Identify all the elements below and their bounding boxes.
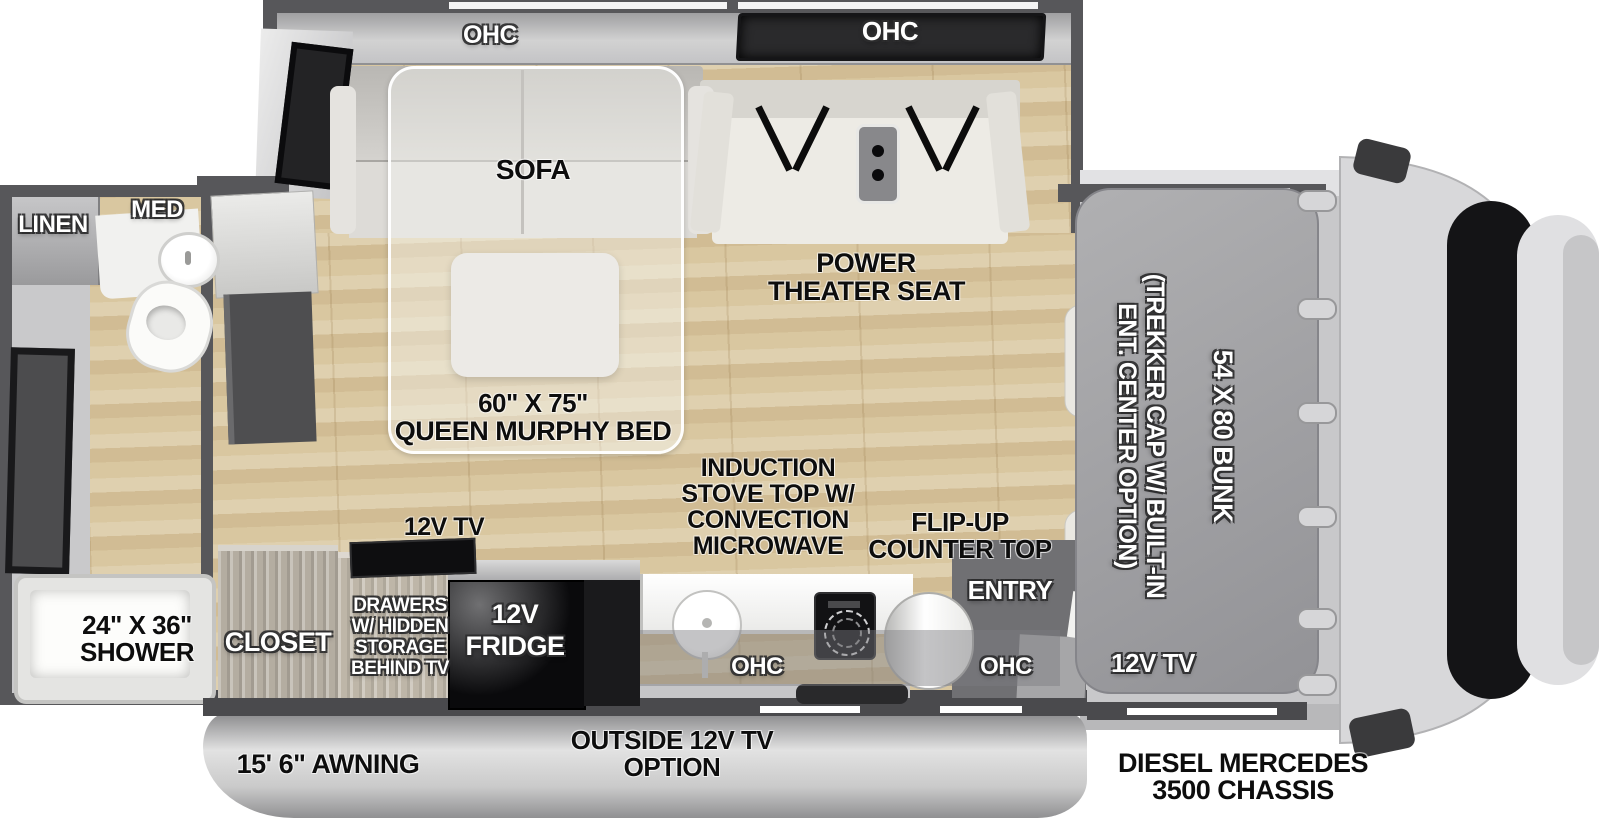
induction-label-line3: CONVECTION xyxy=(646,507,890,533)
closet-label: CLOSET xyxy=(217,628,339,656)
murphy-size-label: 60" X 75" xyxy=(418,390,648,417)
drawers-label-line1: DRAWERS xyxy=(338,596,462,616)
bunk-hinge-icon xyxy=(1297,674,1337,696)
drawers-label-line4: BEHIND TV xyxy=(338,659,462,679)
cab-bumper xyxy=(1563,235,1599,665)
bunk-tv-label: 12V TV xyxy=(1098,650,1208,677)
wardrobe-panel xyxy=(223,292,316,445)
drain-icon xyxy=(702,618,712,628)
theater-seat-console xyxy=(856,124,900,204)
induction-label-line4: MICROWAVE xyxy=(646,533,890,559)
sofa-armrest xyxy=(330,86,356,234)
induction-label-line2: STOVE TOP W/ xyxy=(646,481,890,507)
awning-rail-marker xyxy=(940,706,1022,713)
induction-label-line1: INDUCTION xyxy=(646,455,890,481)
kitchen-tv-label: 12V TV xyxy=(394,514,494,540)
bunk-hinge-icon xyxy=(1297,402,1337,424)
ohc-label-entry: OHC xyxy=(976,655,1036,680)
entry-label: ENTRY xyxy=(962,577,1058,604)
bunk-hinge-icon xyxy=(1297,190,1337,212)
linen-label: LINEN xyxy=(8,213,98,238)
fridge-label-line2: FRIDGE xyxy=(448,632,582,660)
shower-label-line1: 24" X 36" xyxy=(27,612,247,639)
flip-up-label-line2: COUNTER TOP xyxy=(856,536,1064,563)
stove-vent xyxy=(828,601,860,608)
ohc-label-sink: OHC xyxy=(727,655,787,680)
drawers-label-line3: STORAGE xyxy=(338,638,462,658)
theater-seat-label-line2: THEATER SEAT xyxy=(768,277,964,305)
chassis-label-line2: 3500 CHASSIS xyxy=(1106,776,1380,804)
ohc-label-theater: OHC xyxy=(848,18,932,45)
fridge-label-line1: 12V xyxy=(454,600,576,628)
bed-pillow xyxy=(451,253,619,377)
kitchen-tv-slab xyxy=(349,538,476,578)
theater-seat-label-line1: POWER xyxy=(800,249,932,277)
sofa-label: SOFA xyxy=(471,155,595,184)
drawers-label-line2: W/ HIDDEN xyxy=(338,617,462,637)
med-label: MED xyxy=(117,198,197,223)
floorplan-canvas: (TREKKER CAP W/ BUILT-IN ENT. CENTER OPT… xyxy=(0,0,1600,839)
drain-icon xyxy=(185,251,191,265)
roof-marker xyxy=(738,2,1038,9)
bunk-option-line1: (TREKKER CAP W/ BUILT-IN xyxy=(1141,186,1169,686)
ohc-label-sofa: OHC xyxy=(450,22,530,48)
awning-label: 15' 6" AWNING xyxy=(226,750,430,778)
outside-tv-label-line1: OUTSIDE 12V TV xyxy=(570,727,774,754)
fridge-top xyxy=(448,560,640,582)
bunk-option-line2: ENT. CENTER OPTION) xyxy=(1113,186,1141,686)
shower-label-line2: SHOWER xyxy=(27,639,247,666)
fridge-side xyxy=(584,580,640,706)
bathroom-window xyxy=(5,347,75,575)
toilet-bowl xyxy=(142,301,190,345)
bunk-hinge-icon xyxy=(1297,506,1337,528)
corner-cabinet xyxy=(210,190,318,298)
roof-marker xyxy=(449,2,727,9)
cupholder-icon xyxy=(872,145,884,157)
chassis-label-line1: DIESEL MERCEDES xyxy=(1106,749,1380,777)
murphy-name-label: QUEEN MURPHY BED xyxy=(380,417,686,445)
counter-tray xyxy=(796,684,908,704)
awning-rail-marker xyxy=(760,706,860,713)
flip-up-label-line1: FLIP-UP xyxy=(868,509,1052,536)
body-wall-marker xyxy=(1127,708,1277,715)
bunk-option-label: (TREKKER CAP W/ BUILT-IN ENT. CENTER OPT… xyxy=(1111,186,1169,686)
bunk-size-label: 54 X 80 BUNK xyxy=(1207,236,1237,636)
outside-tv-label-line2: OPTION xyxy=(570,754,774,781)
bunk-hinge-icon xyxy=(1297,608,1337,630)
cupholder-icon xyxy=(872,169,884,181)
bunk-hinge-icon xyxy=(1297,298,1337,320)
